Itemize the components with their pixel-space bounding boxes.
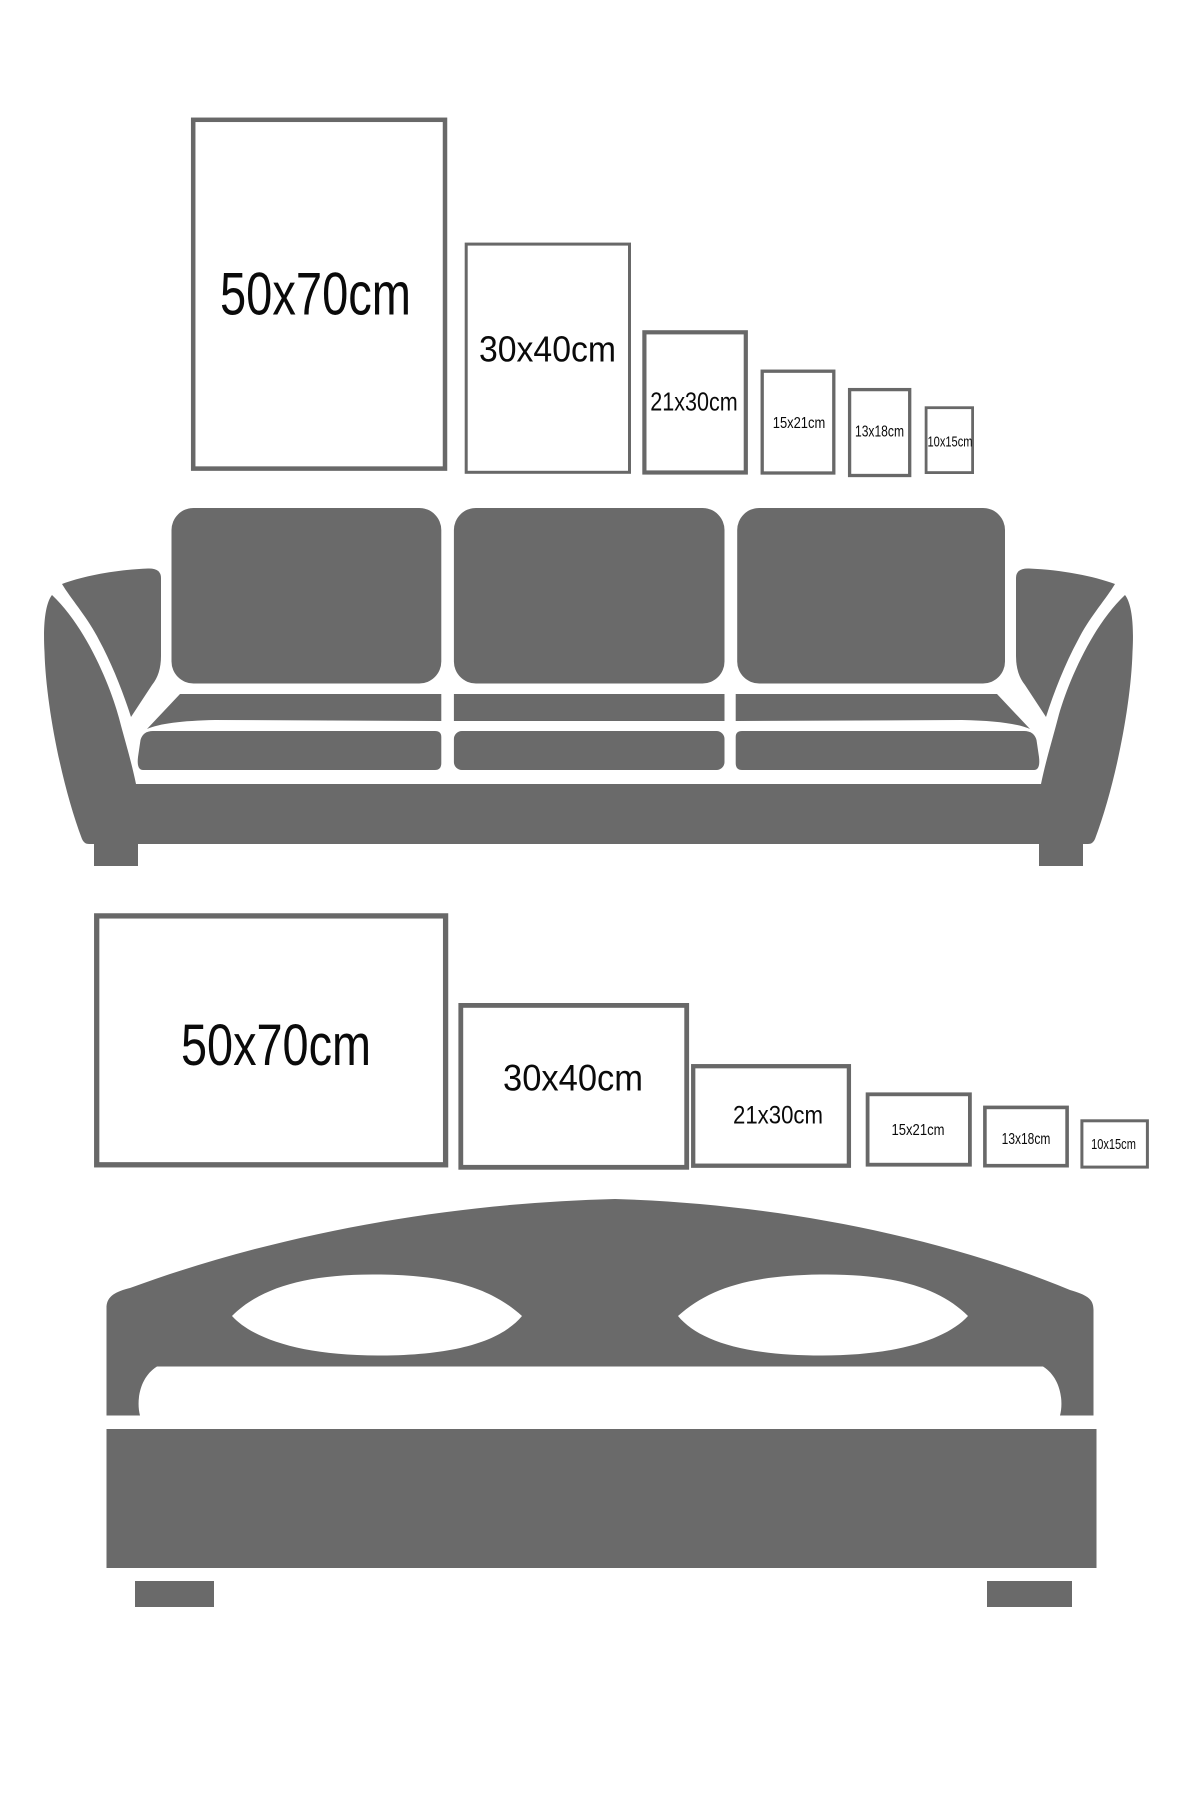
- svg-text:30x40cm: 30x40cm: [503, 1057, 643, 1098]
- svg-text:21x30cm: 21x30cm: [650, 388, 738, 416]
- svg-text:13x18cm: 13x18cm: [1002, 1131, 1051, 1148]
- svg-text:21x30cm: 21x30cm: [733, 1102, 823, 1130]
- svg-text:15x21cm: 15x21cm: [892, 1122, 945, 1139]
- svg-text:50x70cm: 50x70cm: [220, 260, 411, 327]
- svg-text:50x70cm: 50x70cm: [181, 1013, 371, 1078]
- svg-text:10x15cm: 10x15cm: [928, 435, 973, 451]
- svg-text:30x40cm: 30x40cm: [479, 329, 616, 370]
- svg-text:15x21cm: 15x21cm: [773, 415, 826, 432]
- svg-text:10x15cm: 10x15cm: [1091, 1137, 1136, 1153]
- svg-text:13x18cm: 13x18cm: [855, 424, 904, 441]
